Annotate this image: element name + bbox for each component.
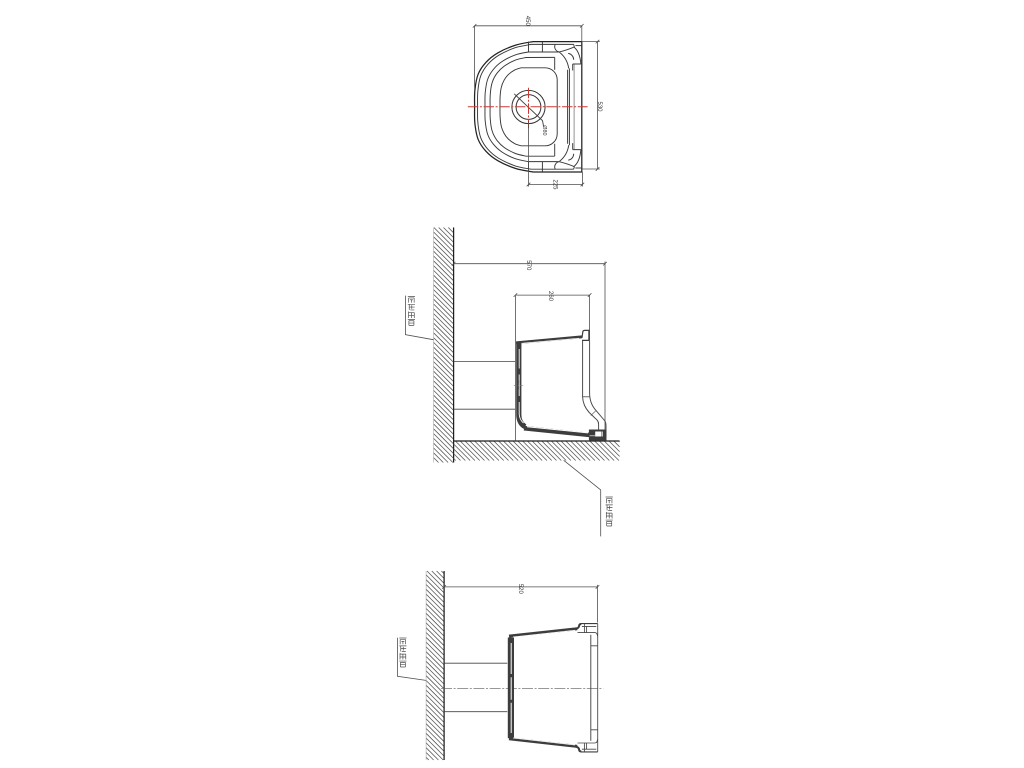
svg-text:450: 450 xyxy=(524,16,530,27)
svg-text:Ø80: Ø80 xyxy=(541,125,547,135)
svg-text:570: 570 xyxy=(525,260,531,271)
svg-text:260: 260 xyxy=(547,291,553,302)
svg-text:520: 520 xyxy=(517,584,523,595)
svg-text:530: 530 xyxy=(596,102,602,113)
svg-text:225: 225 xyxy=(551,180,557,191)
